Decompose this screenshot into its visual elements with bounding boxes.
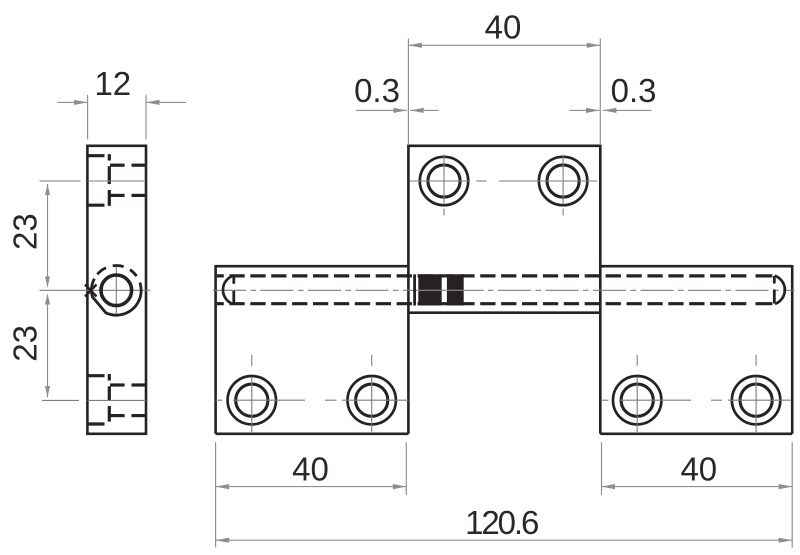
- svg-text:12: 12: [94, 65, 131, 102]
- svg-text:23: 23: [7, 213, 44, 250]
- svg-text:40: 40: [485, 9, 522, 46]
- svg-text:0.3: 0.3: [611, 72, 657, 109]
- svg-text:0.3: 0.3: [354, 72, 400, 109]
- svg-text:120.6: 120.6: [465, 504, 538, 541]
- svg-text:40: 40: [292, 451, 329, 488]
- svg-text:23: 23: [7, 325, 44, 362]
- svg-text:40: 40: [680, 451, 717, 488]
